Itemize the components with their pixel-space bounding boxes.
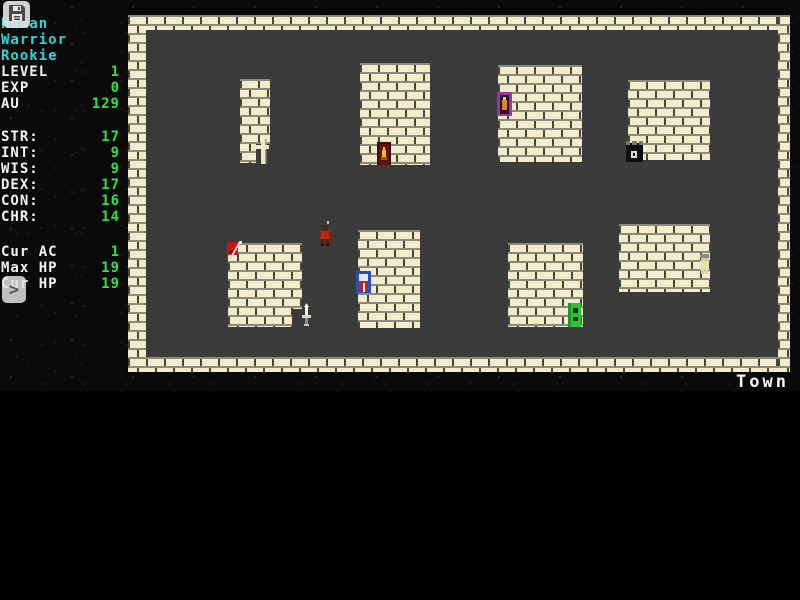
wall-left [128, 15, 146, 372]
wall-bottom [128, 357, 790, 372]
shield-door-icon[interactable] [356, 271, 371, 293]
cross-icon[interactable] [254, 139, 272, 165]
villager-icon[interactable] [697, 254, 711, 275]
flame-door-icon[interactable] [377, 142, 391, 165]
expand-sidebar-button[interactable]: > [2, 276, 26, 303]
red-banner-icon[interactable] [226, 241, 242, 260]
stat-con: CON:16 [1, 193, 120, 208]
stat-dex: DEX:17 [1, 177, 120, 192]
stat-int: INT:9 [1, 145, 120, 160]
player-icon [317, 221, 333, 247]
wall-top [128, 15, 790, 30]
save-button[interactable] [3, 1, 30, 28]
wall-right [778, 15, 790, 372]
stat-level: LEVEL1 [1, 64, 120, 79]
dagger-icon[interactable] [292, 303, 311, 327]
chevron-right-icon: > [9, 280, 19, 300]
stat-cur-ac: Cur AC1 [1, 244, 120, 259]
character-title: Rookie [1, 48, 120, 63]
stat-str: STR:17 [1, 129, 120, 144]
building-inn [360, 63, 430, 165]
stat-chr: CHR:14 [1, 209, 120, 224]
game-screen: Town Human Warrior Rookie LEVEL1 EXP0 AU… [0, 0, 800, 600]
stat-exp: EXP0 [1, 80, 120, 95]
green-door-icon[interactable] [568, 303, 581, 327]
stat-gold: AU129 [1, 96, 120, 111]
stat-wis: WIS:9 [1, 161, 120, 176]
magic-door-icon[interactable] [497, 92, 512, 116]
tower-door-icon[interactable] [626, 141, 643, 162]
floppy-disk-icon [8, 4, 26, 26]
stat-max-hp: Max HP19 [1, 260, 120, 275]
character-class: Warrior [1, 32, 120, 47]
map-name-label: Town [715, 372, 789, 390]
